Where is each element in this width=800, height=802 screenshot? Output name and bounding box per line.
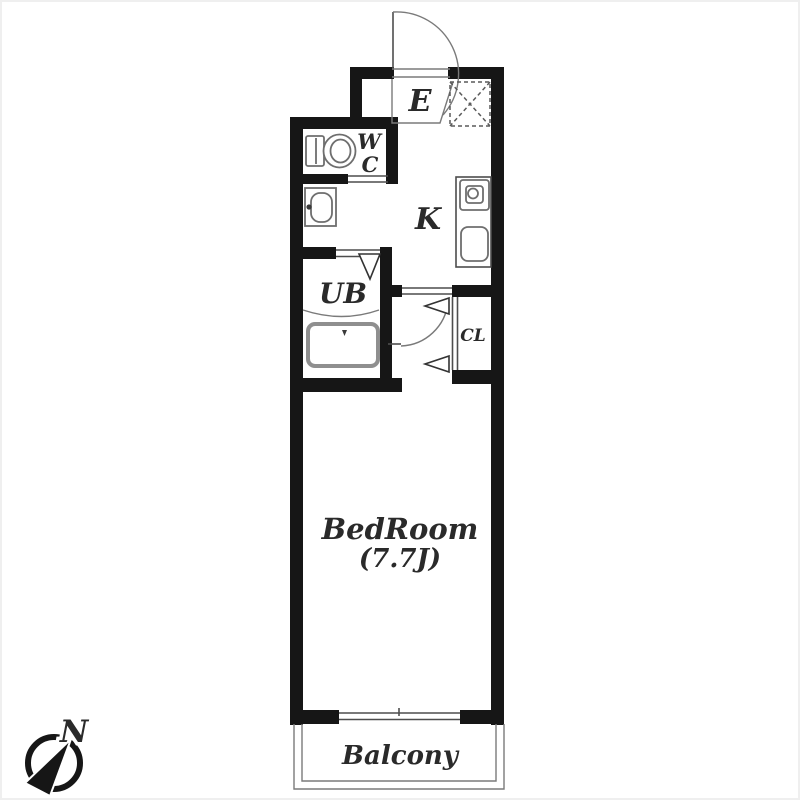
shoe-cabinet-icon xyxy=(450,82,490,126)
stove-icon xyxy=(460,180,489,210)
toilet-label-bottom: C xyxy=(362,152,379,177)
kitchen-sink-icon xyxy=(461,227,488,261)
floorplan-drawing: E W C K UB CL BedRoom (7.7J) Balcony N xyxy=(2,2,800,802)
door-stop-top xyxy=(425,298,449,314)
washbasin-bowl xyxy=(311,193,332,222)
kitchen-counter xyxy=(456,177,491,267)
bath-label: UB xyxy=(319,277,367,310)
wall-k-bottom-right xyxy=(452,285,504,297)
window-icon xyxy=(339,708,460,720)
bedroom-label: BedRoom xyxy=(321,512,479,546)
wall-left xyxy=(290,117,303,725)
wall-ub-bottom xyxy=(290,378,402,392)
bedroom-size-label: (7.7J) xyxy=(359,544,441,574)
bedroom-door-swing-icon xyxy=(388,298,449,372)
wall-bottom-left xyxy=(290,710,339,724)
closet-label: CL xyxy=(460,326,485,346)
wall-ub-right xyxy=(380,247,392,392)
kitchen-label: K xyxy=(414,202,443,237)
door-stop-bottom xyxy=(425,356,449,372)
toilet-tank xyxy=(306,136,324,166)
wall-ub-top xyxy=(290,247,336,259)
entrance-label: E xyxy=(408,84,433,119)
balcony-label: Balcony xyxy=(341,741,460,771)
toilet-label-top: W xyxy=(357,129,383,154)
compass-north-label: N xyxy=(59,714,90,750)
toilet-icon xyxy=(306,135,356,168)
floorplan-canvas: E W C K UB CL BedRoom (7.7J) Balcony N xyxy=(0,0,800,800)
washbasin-icon xyxy=(305,188,336,226)
compass-icon: N xyxy=(25,714,90,796)
toilet-bowl-inner xyxy=(331,140,351,163)
wall-right xyxy=(491,67,504,725)
wall-wc-bottom xyxy=(303,174,348,184)
wall-bottom-right xyxy=(460,710,504,724)
bath-edge-curve xyxy=(303,310,379,317)
stove-burner xyxy=(468,189,478,199)
wall-cl-bottom xyxy=(452,370,504,384)
wall-wc-top xyxy=(290,117,398,129)
wall-k-bottom-left xyxy=(386,285,402,297)
bathtub-icon xyxy=(303,310,379,366)
washbasin-faucet xyxy=(306,204,311,209)
ub-door-swing-marker xyxy=(359,254,380,279)
